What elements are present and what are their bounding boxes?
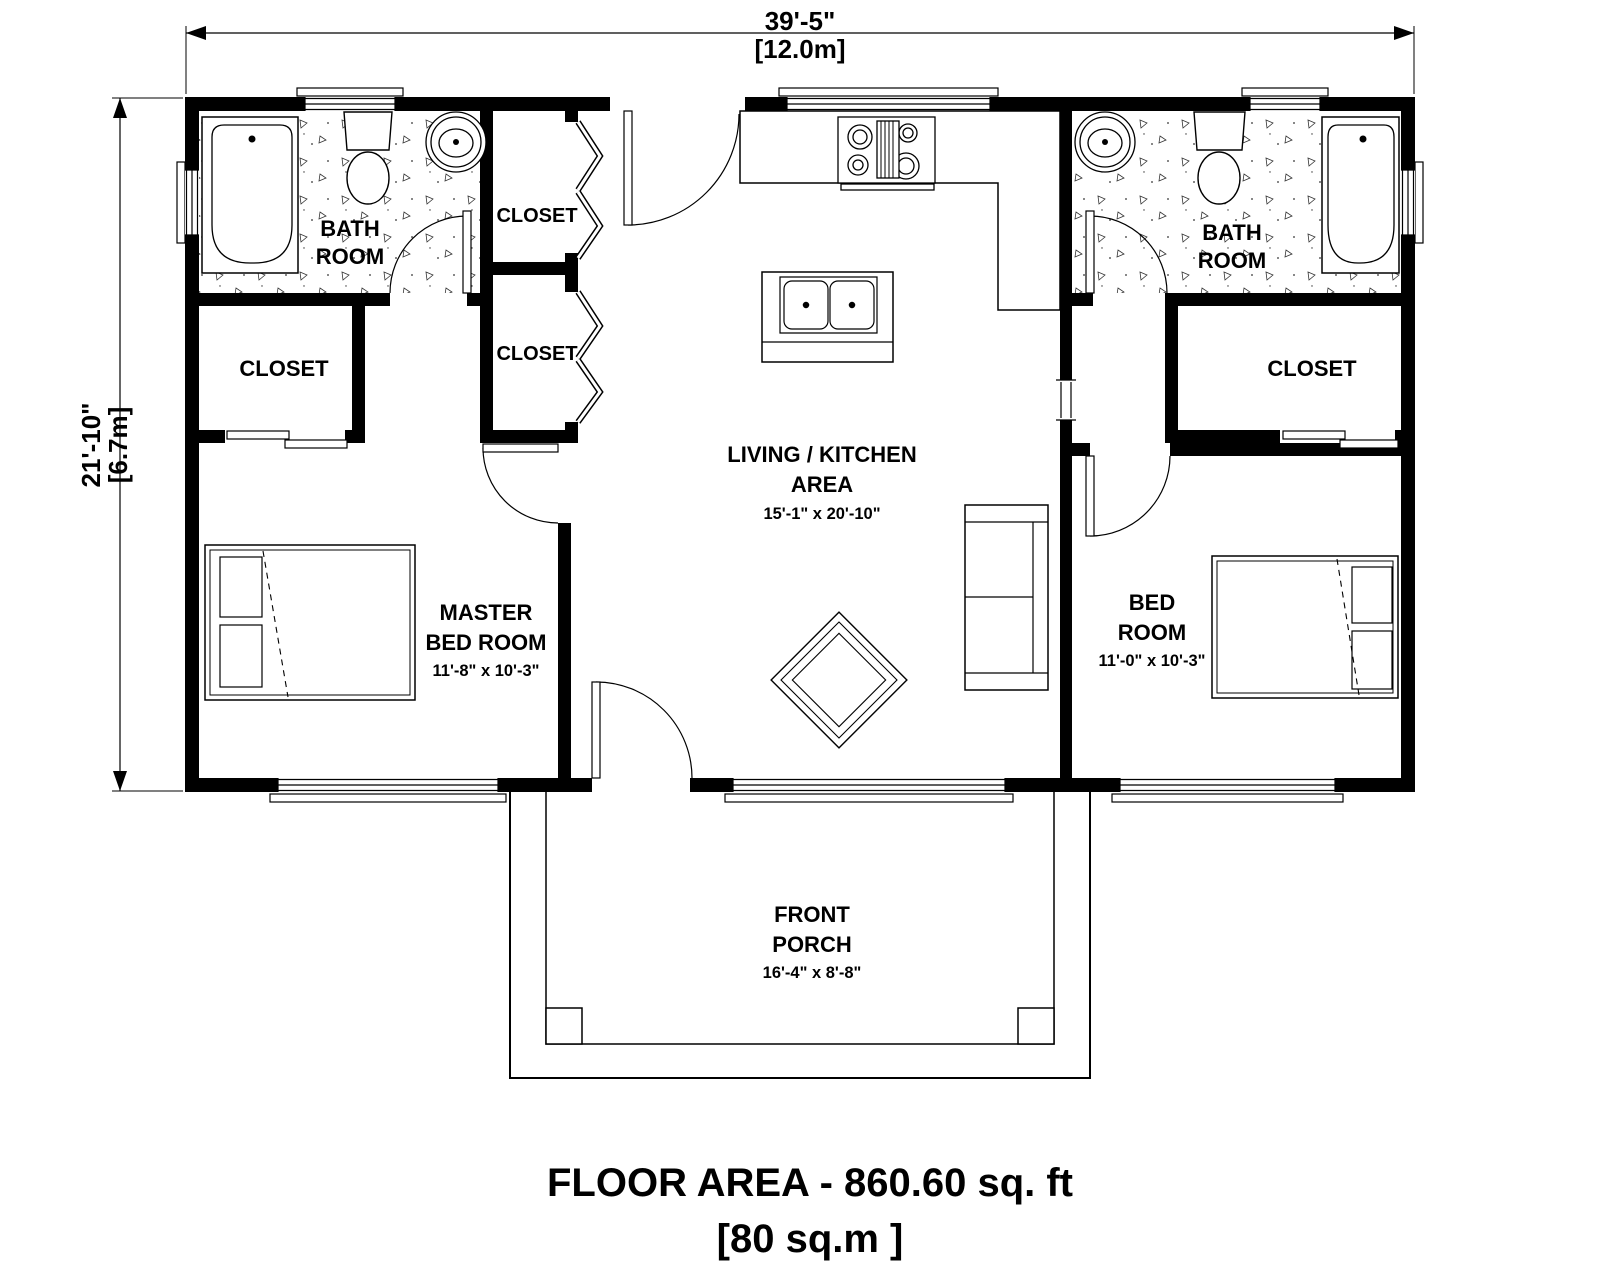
overall-width-metric: [12.0m] xyxy=(754,34,845,64)
overall-height-imperial: 21'-10" xyxy=(76,402,106,487)
bathtub-left xyxy=(202,117,298,273)
room-size-living: 15'-1" x 20'-10" xyxy=(763,505,880,523)
room-label-master-1: MASTER xyxy=(440,600,533,625)
overall-width-imperial: 39'-5" xyxy=(765,6,836,36)
room-label-bedroom-1: BED xyxy=(1129,590,1175,615)
sink-right xyxy=(1075,112,1135,172)
room-label-bedroom-2: ROOM xyxy=(1118,620,1186,645)
sliding-door-closet-left xyxy=(227,431,347,448)
hall-opening xyxy=(1056,380,1076,420)
bathtub-right xyxy=(1322,117,1399,273)
armchair xyxy=(771,612,907,748)
window-bedroom-bottom xyxy=(1112,778,1343,802)
room-label-living-1: LIVING / KITCHEN xyxy=(727,442,916,467)
door-front-entry xyxy=(592,682,692,778)
room-label-bath-left-1: BATH xyxy=(320,216,379,241)
room-label-closet-left: CLOSET xyxy=(239,356,329,381)
door-rear-entry xyxy=(624,111,739,225)
window-right-wall xyxy=(1401,162,1423,243)
room-size-bedroom: 11'-0" x 10'-3" xyxy=(1099,652,1206,670)
sink-left xyxy=(426,112,486,172)
sofa xyxy=(965,505,1048,690)
room-label-closet-center-top: CLOSET xyxy=(496,205,577,227)
window-left-wall xyxy=(177,162,199,243)
kitchen-island-sink xyxy=(762,272,893,362)
window-bath-right-top xyxy=(1242,88,1328,111)
room-label-closet-right: CLOSET xyxy=(1267,356,1357,381)
window-bath-left-top xyxy=(297,88,403,111)
room-label-closet-center-bottom: CLOSET xyxy=(496,343,577,365)
room-label-living-2: AREA xyxy=(791,472,853,497)
stove xyxy=(838,117,935,190)
room-label-porch-1: FRONT xyxy=(774,902,850,927)
window-kitchen-top xyxy=(779,88,998,111)
room-label-master-2: BED ROOM xyxy=(426,630,547,655)
room-size-porch: 16'-4" x 8'-8" xyxy=(763,964,862,982)
overall-height-metric: [6.7m] xyxy=(103,407,133,484)
room-label-bath-right-1: BATH xyxy=(1202,220,1261,245)
room-size-master: 11'-8" x 10'-3" xyxy=(433,662,540,680)
room-label-porch-2: PORCH xyxy=(772,932,851,957)
floor-area-title: FLOOR AREA - 860.60 sq. ft xyxy=(547,1161,1073,1205)
bifold-doors-center-closets xyxy=(578,122,600,422)
window-master-bottom xyxy=(270,778,506,802)
door-bedroom-right xyxy=(1086,456,1170,536)
room-label-bath-left-2: ROOM xyxy=(316,244,384,269)
door-master-bedroom xyxy=(483,444,558,523)
window-living-bottom xyxy=(725,778,1013,802)
bed-right xyxy=(1212,556,1398,698)
bed-master xyxy=(205,545,415,700)
floor-plan-drawing: 39'-5" [12.0m] 21'-10" [6.7m] BATH ROOM … xyxy=(0,0,1600,1280)
floor-plan-sheet: 39'-5" [12.0m] 21'-10" [6.7m] BATH ROOM … xyxy=(0,0,1600,1280)
room-label-bath-right-2: ROOM xyxy=(1198,248,1266,273)
floor-area-metric: [80 sq.m ] xyxy=(717,1217,904,1261)
